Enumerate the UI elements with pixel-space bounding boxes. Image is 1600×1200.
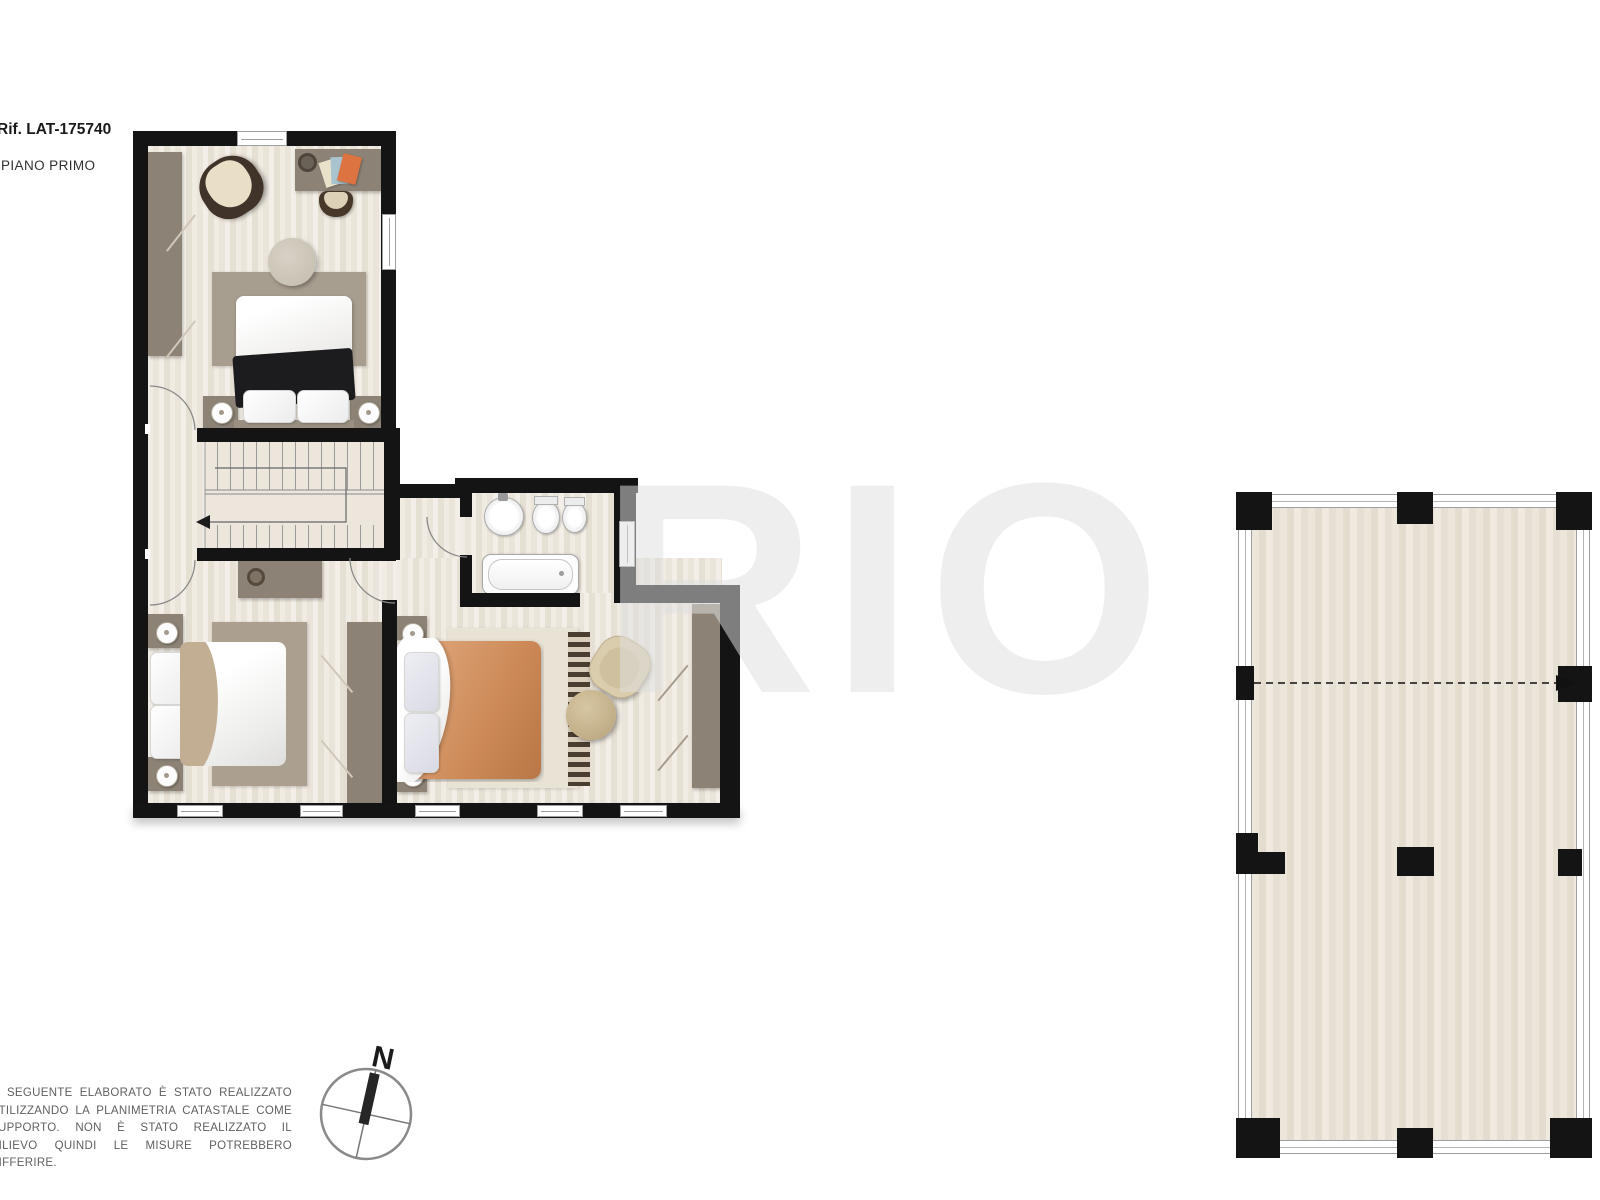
door-arc-bedroom2 bbox=[150, 560, 195, 605]
door-arc-bedroom3 bbox=[350, 558, 395, 603]
stair-direction-arrow-icon bbox=[196, 515, 210, 529]
reference-label: Rif. LAT-175740 bbox=[0, 121, 111, 139]
floor-title: PIANO PRIMO bbox=[1, 158, 95, 173]
section-arrow-icon bbox=[1556, 675, 1576, 691]
door-arc-bedroom1 bbox=[150, 386, 195, 430]
compass-rose-icon: N bbox=[321, 1040, 411, 1159]
disclaimer-text: IL SEGUENTE ELABORATO È STATO REALIZZATO… bbox=[0, 1085, 292, 1173]
floor-plan-canvas: Rif. LAT-175740 PIANO PRIMO IL SEGUENTE … bbox=[0, 0, 1600, 1200]
door-arc-bathroom bbox=[427, 517, 467, 557]
compass-north-label: N bbox=[369, 1040, 397, 1077]
stair-direction-line bbox=[207, 468, 346, 522]
plan-linework: N bbox=[0, 0, 1600, 1200]
